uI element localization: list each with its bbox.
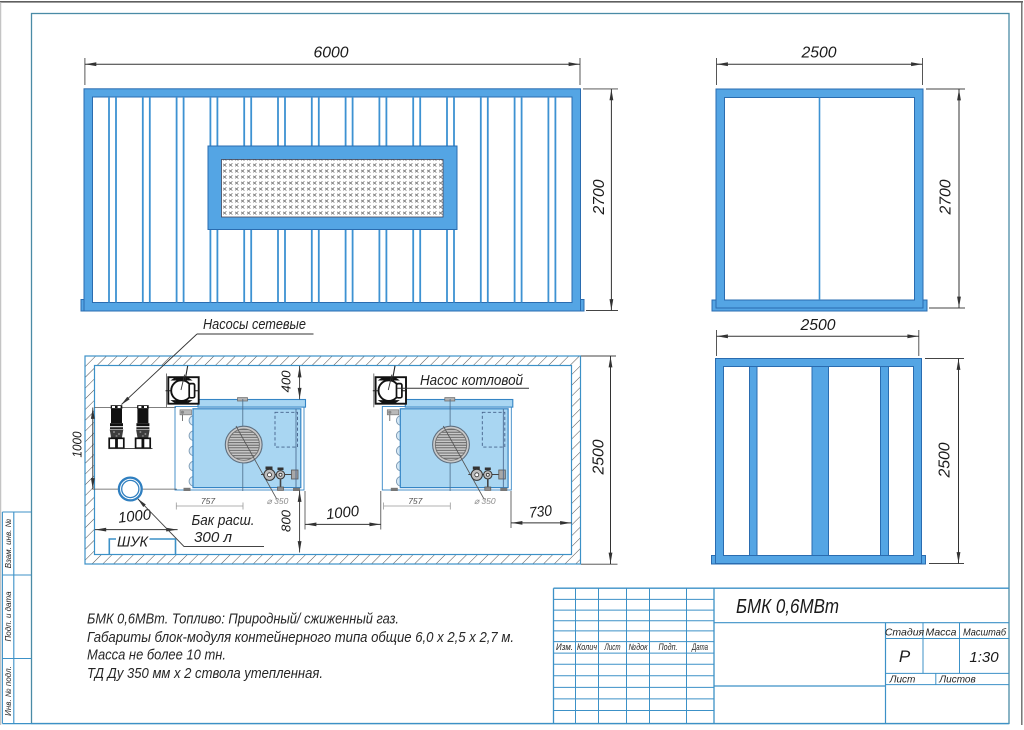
- svg-text:2700: 2700: [591, 179, 608, 215]
- svg-text:Масса: Масса: [925, 626, 956, 638]
- svg-text:Дата: Дата: [691, 642, 708, 652]
- svg-text:⌀ 350: ⌀ 350: [474, 496, 496, 506]
- svg-text:Р: Р: [899, 647, 911, 666]
- svg-text:2500: 2500: [801, 45, 837, 62]
- svg-text:Инв. № подл.: Инв. № подл.: [4, 666, 13, 716]
- svg-text:БМК 0,6МВт: БМК 0,6МВт: [736, 596, 839, 618]
- svg-text:ШУК: ШУК: [117, 535, 149, 551]
- svg-text:730: 730: [528, 502, 553, 521]
- svg-text:1000: 1000: [325, 503, 360, 523]
- svg-text:Масштаб: Масштаб: [963, 626, 1007, 638]
- svg-text:ТД Ду 350 мм х 2 ствола утепле: ТД Ду 350 мм х 2 ствола утепленная.: [87, 665, 323, 682]
- svg-text:757: 757: [201, 496, 215, 506]
- svg-text:Изм.: Изм.: [556, 642, 573, 652]
- svg-text:400: 400: [279, 370, 294, 393]
- svg-text:1:30: 1:30: [969, 649, 999, 666]
- svg-text:Стадия: Стадия: [885, 626, 925, 638]
- svg-text:БМК 0,6МВт. Топливо: Природный: БМК 0,6МВт. Топливо: Природный/ сжиженны…: [87, 611, 399, 628]
- svg-text:Лист: Лист: [889, 675, 916, 686]
- svg-text:2700: 2700: [938, 179, 955, 215]
- svg-text:2500: 2500: [800, 317, 836, 334]
- svg-text:6000: 6000: [314, 45, 349, 62]
- svg-text:757: 757: [408, 496, 422, 506]
- svg-text:№док: №док: [629, 642, 649, 652]
- svg-text:⌀ 350: ⌀ 350: [267, 496, 289, 506]
- svg-text:Габариты блок-модуля контейнер: Габариты блок-модуля контейнерного типа …: [87, 629, 514, 646]
- svg-text:Насосы сетевые: Насосы сетевые: [203, 316, 306, 333]
- svg-text:Колич: Колич: [577, 642, 597, 652]
- svg-text:Лист: Лист: [604, 642, 621, 652]
- svg-text:800: 800: [279, 509, 294, 532]
- svg-text:Взам. инв. №: Взам. инв. №: [4, 518, 13, 568]
- svg-text:Подп.: Подп.: [659, 642, 678, 652]
- svg-text:Насос котловой: Насос котловой: [420, 372, 524, 389]
- svg-text:Бак расш.: Бак расш.: [192, 512, 255, 529]
- svg-text:2500: 2500: [937, 442, 954, 478]
- svg-text:2500: 2500: [591, 439, 608, 475]
- svg-text:300 л: 300 л: [194, 529, 233, 546]
- svg-text:Листов: Листов: [938, 675, 975, 686]
- svg-text:Подп. и дата: Подп. и дата: [4, 591, 13, 642]
- svg-text:1000: 1000: [70, 431, 85, 458]
- svg-text:1000: 1000: [117, 506, 152, 526]
- svg-text:Масса не более 10 тн.: Масса не более 10 тн.: [87, 647, 226, 664]
